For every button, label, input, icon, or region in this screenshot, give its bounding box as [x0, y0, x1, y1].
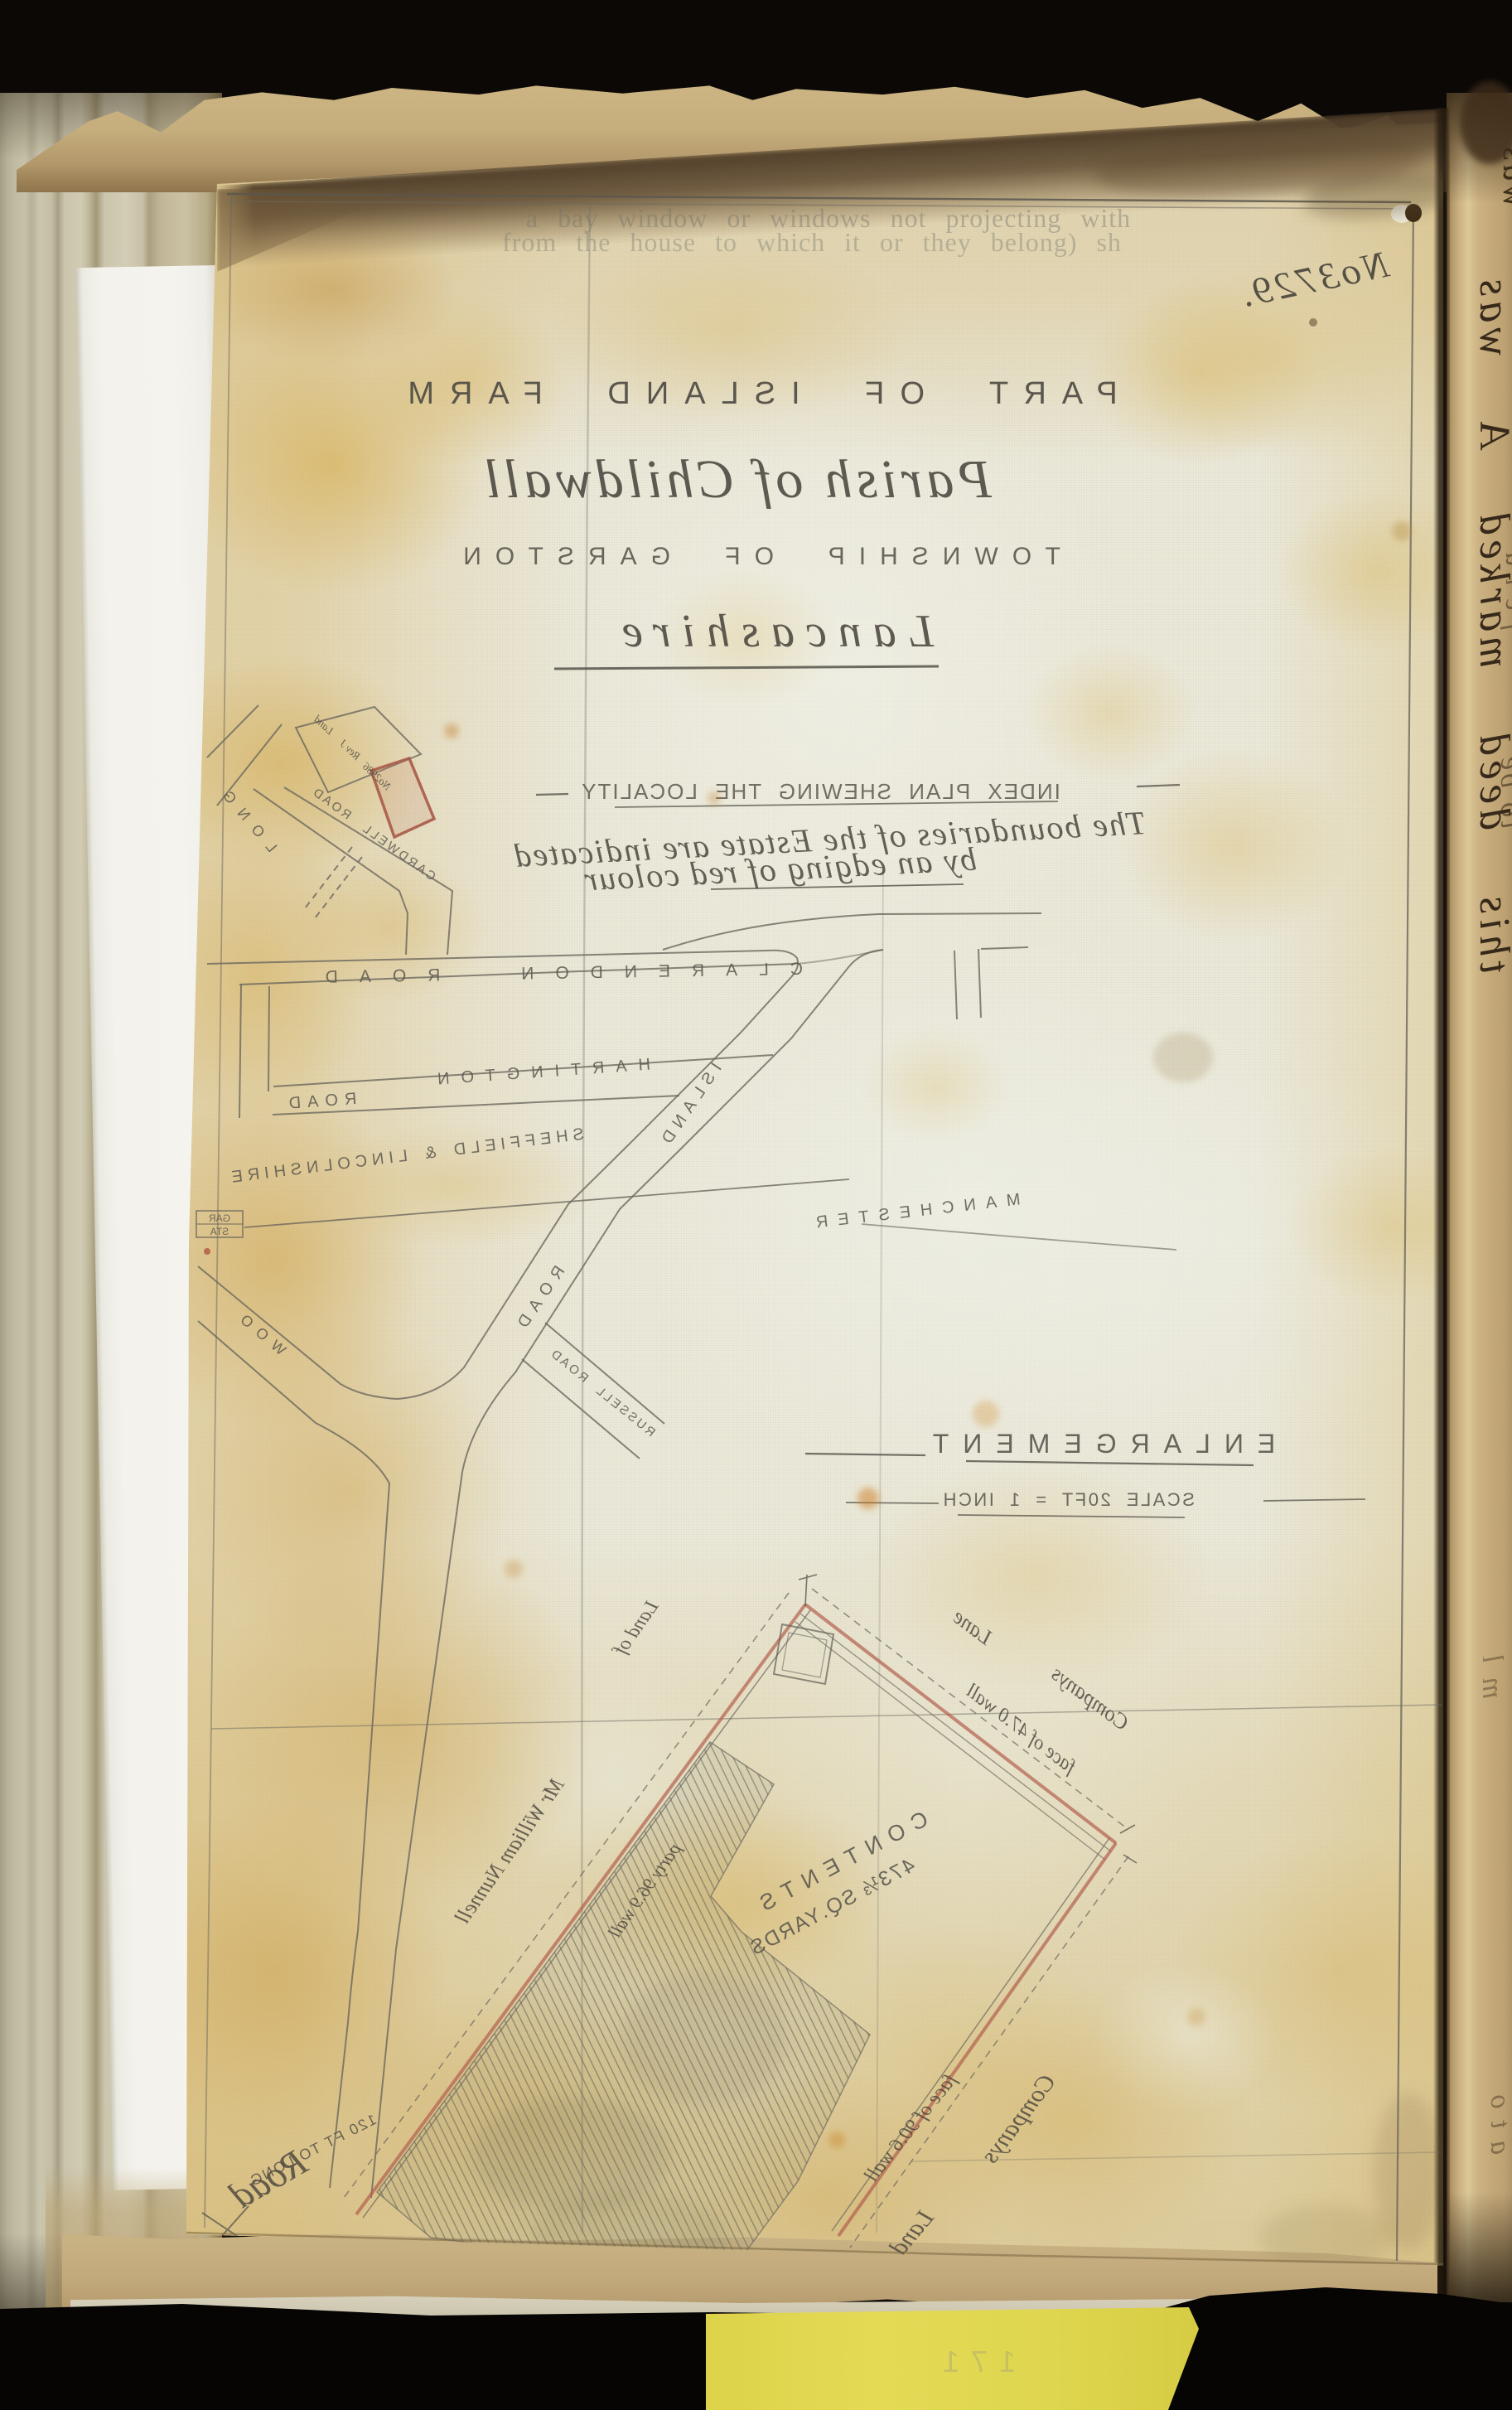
svg-text:Land of: Land of: [608, 1595, 663, 1661]
svg-text:SCALE 20FT = 1 INCH: SCALE 20FT = 1 INCH: [941, 1489, 1195, 1510]
svg-text:No3729.: No3729.: [1234, 242, 1394, 316]
svg-text:RUSSELL ROAD: RUSSELL ROAD: [547, 1346, 659, 1440]
svg-text:Land: Land: [312, 713, 337, 738]
svg-text:Companys: Companys: [976, 2069, 1061, 2169]
svg-text:f e l d: f e l d: [1500, 549, 1512, 630]
svg-text:to be: to be: [1495, 753, 1512, 829]
svg-text:CLARENDON ROAD: CLARENDON ROAD: [304, 960, 804, 988]
svg-text:Mr William Nunnell: Mr William Nunnell: [451, 1773, 570, 1928]
svg-text:MANCHESTER: MANCHESTER: [805, 1190, 1022, 1232]
svg-text:Lancashire: Lancashire: [611, 606, 935, 657]
svg-text:m l: m l: [1476, 1652, 1510, 1699]
svg-text:SHEFFIELD & LINCOLNSHIRE: SHEFFIELD & LINCOLNSHIRE: [225, 1125, 585, 1188]
svg-text:WOO: WOO: [231, 1306, 289, 1359]
svg-text:from the house to which it or: from the house to which it or they belon…: [502, 227, 1122, 257]
svg-text:TOWNSHIP OF GARSTON: TOWNSHIP OF GARSTON: [449, 543, 1060, 570]
svg-text:Companys: Companys: [1047, 1662, 1134, 1735]
svg-text:HARTINGTON: HARTINGTON: [425, 1056, 650, 1090]
svg-text:Parish of Childwall: Parish of Childwall: [481, 449, 993, 510]
svg-text:ENLARGEMENT: ENLARGEMENT: [919, 1429, 1276, 1459]
svg-text:INDEX PLAN SHEWING THE LOCALIT: INDEX PLAN SHEWING THE LOCALITY: [580, 779, 1060, 804]
svg-text:face of 90.6 wall: face of 90.6 wall: [861, 2069, 961, 2186]
svg-text:GAR: GAR: [209, 1212, 230, 1224]
svg-text:STA: STA: [210, 1226, 229, 1237]
svg-text:a t o: a t o: [1485, 2093, 1512, 2155]
svg-text:ROAD: ROAD: [282, 1090, 357, 1113]
svg-text:Rev J: Rev J: [337, 737, 365, 763]
svg-text:171: 171: [931, 2345, 1016, 2379]
svg-text:ROAD: ROAD: [510, 1263, 569, 1338]
svg-text:PART OF ISLAND FARM: PART OF ISLAND FARM: [392, 376, 1117, 411]
svg-text:Lane: Lane: [949, 1604, 998, 1650]
